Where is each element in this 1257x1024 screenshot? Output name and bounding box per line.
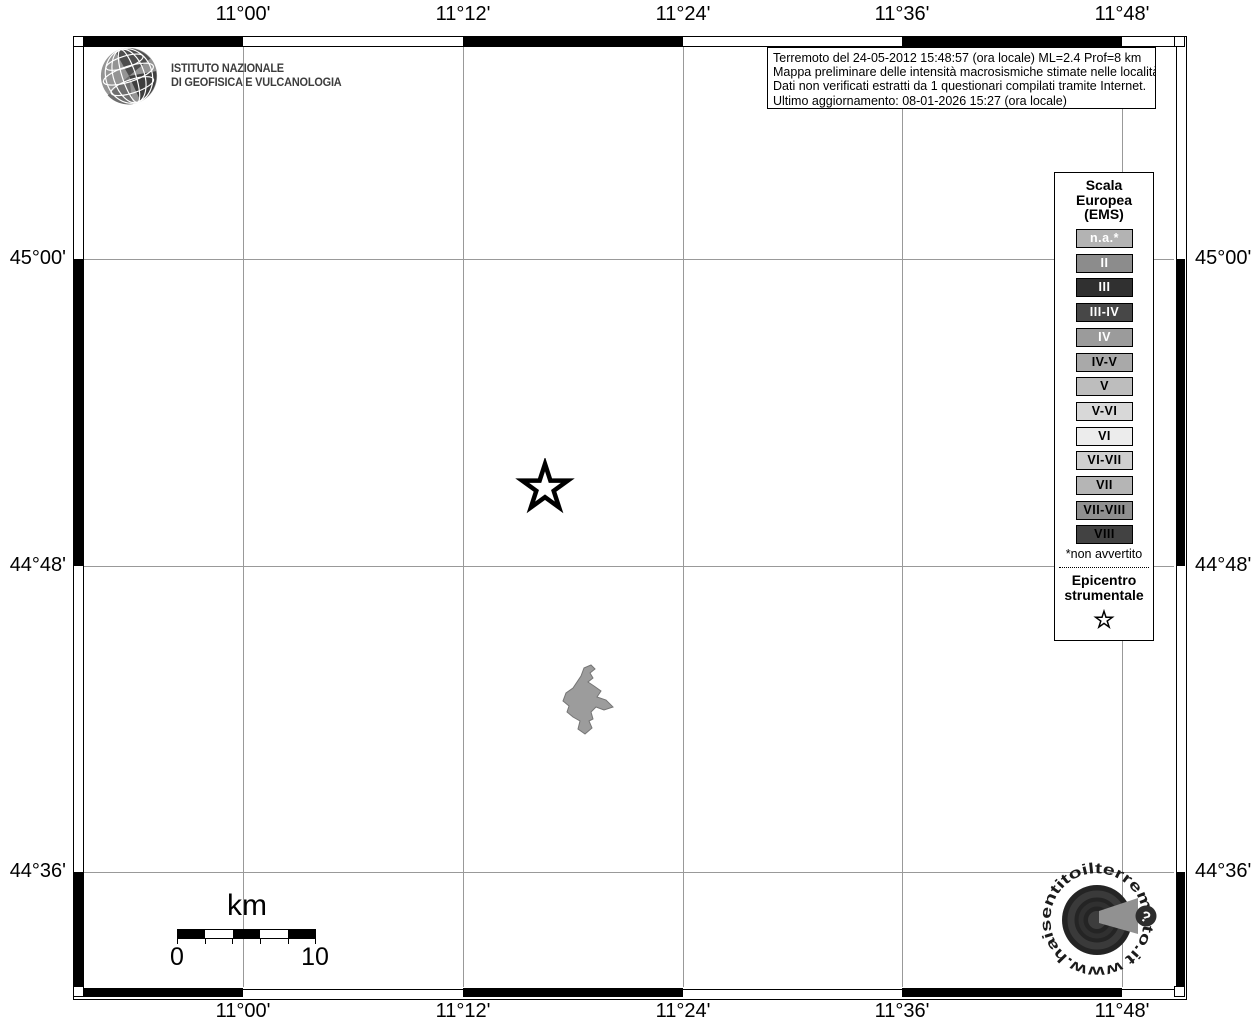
axis-label-top: 11°00' <box>216 3 271 26</box>
scale-bar-segments <box>177 929 316 939</box>
event-info-line: Mappa preliminare delle intensità macros… <box>773 65 1155 79</box>
axis-label-top: 11°36' <box>875 3 930 26</box>
legend-item: VII-VIII <box>1076 501 1133 520</box>
frame-band-segment <box>74 259 83 566</box>
map-frame-inner <box>83 46 1177 990</box>
axis-label-right: 45°00' <box>1195 247 1251 270</box>
scale-bar-segment <box>233 930 260 938</box>
ingv-wordmark: ISTITUTO NAZIONALE DI GEOFISICA E VULCAN… <box>171 63 341 90</box>
frame-corner <box>73 36 84 47</box>
scale-bar-min: 0 <box>157 943 197 972</box>
event-info-line: Terremoto del 24-05-2012 15:48:57 (ora l… <box>773 51 1155 65</box>
legend-footnote: *non avvertito <box>1055 547 1153 561</box>
frame-corner <box>1174 36 1185 47</box>
legend-epicenter-line: Epicentro <box>1055 573 1153 588</box>
legend-divider <box>1059 567 1149 568</box>
frame-band-segment <box>74 872 83 987</box>
legend-title-line: (EMS) <box>1055 207 1153 222</box>
legend-title: Scala Europea (EMS) <box>1055 173 1153 222</box>
axis-label-bottom: 11°00' <box>216 1000 271 1023</box>
legend-item: V-VI <box>1076 402 1133 421</box>
event-info-line: Ultimo aggiornamento: 08-01-2026 15:27 (… <box>773 94 1155 108</box>
axis-label-right: 44°36' <box>1195 860 1251 883</box>
axis-label-top: 11°12' <box>436 3 491 26</box>
ingv-line2: DI GEOFISICA E VULCANOLOGIA <box>171 77 341 91</box>
axis-label-bottom: 11°36' <box>875 1000 930 1023</box>
frame-corner <box>73 986 84 997</box>
scale-bar-tick <box>232 939 233 944</box>
frame-band-segment <box>1176 872 1185 987</box>
legend-title-line: Scala <box>1055 178 1153 193</box>
axis-label-top: 11°24' <box>656 3 711 26</box>
scale-bar-tick <box>205 939 206 944</box>
legend-item: V <box>1076 377 1133 396</box>
frame-band-segment <box>463 37 683 46</box>
legend-epicenter-label: Epicentro strumentale <box>1055 573 1153 603</box>
legend-item: II <box>1076 254 1133 273</box>
legend-title-line: Europea <box>1055 193 1153 208</box>
frame-corner <box>1174 986 1185 997</box>
ingv-line1: ISTITUTO NAZIONALE <box>171 63 341 77</box>
frame-band-segment <box>84 988 243 997</box>
legend-item: VII <box>1076 476 1133 495</box>
frame-band-segment <box>902 37 1122 46</box>
axis-label-bottom: 11°12' <box>436 1000 491 1023</box>
legend-box: Scala Europea (EMS) n.a.* II III III-IV … <box>1054 172 1154 641</box>
scale-bar-segment <box>260 930 287 938</box>
scale-bar-tick <box>288 939 289 944</box>
event-info-box: Terremoto del 24-05-2012 15:48:57 (ora l… <box>767 47 1156 109</box>
scale-bar-max: 10 <box>295 943 335 972</box>
scale-bar-segment <box>288 930 315 938</box>
axis-label-bottom: 11°48' <box>1095 1000 1150 1023</box>
scale-bar-unit: km <box>178 889 316 923</box>
ingv-globe-icon <box>98 45 160 107</box>
epicenter-star-icon <box>515 458 575 518</box>
legend-item: III-IV <box>1076 303 1133 322</box>
locality-polygon <box>556 658 620 738</box>
frame-band-segment <box>902 988 1122 997</box>
macroseismic-map: 11°00' 11°12' 11°24' 11°36' 11°48' 11°00… <box>0 0 1257 1024</box>
axis-label-left: 44°48' <box>0 554 66 577</box>
event-info-line: Dati non verificati estratti da 1 questi… <box>773 79 1155 93</box>
axis-label-right: 44°48' <box>1195 554 1251 577</box>
legend-item: VI-VII <box>1076 451 1133 470</box>
axis-label-bottom: 11°24' <box>656 1000 711 1023</box>
legend-item: IV-V <box>1076 353 1133 372</box>
legend-item: VI <box>1076 427 1133 446</box>
scale-bar-tick <box>260 939 261 944</box>
legend-item: n.a.* <box>1076 229 1133 248</box>
scale-bar-segment <box>178 930 205 938</box>
site-logo: www.haisentitoilterremoto.it ? <box>1035 855 1165 985</box>
legend-item: IV <box>1076 328 1133 347</box>
axis-label-top: 11°48' <box>1095 3 1150 26</box>
legend-star-icon <box>1093 609 1115 631</box>
legend-item: VIII <box>1076 525 1133 544</box>
frame-band-segment <box>463 988 683 997</box>
axis-label-left: 45°00' <box>0 247 66 270</box>
scale-bar-segment <box>205 930 232 938</box>
legend-item: III <box>1076 278 1133 297</box>
legend-epicenter-line: strumentale <box>1055 588 1153 603</box>
frame-band-segment <box>1176 259 1185 566</box>
axis-label-left: 44°36' <box>0 860 66 883</box>
